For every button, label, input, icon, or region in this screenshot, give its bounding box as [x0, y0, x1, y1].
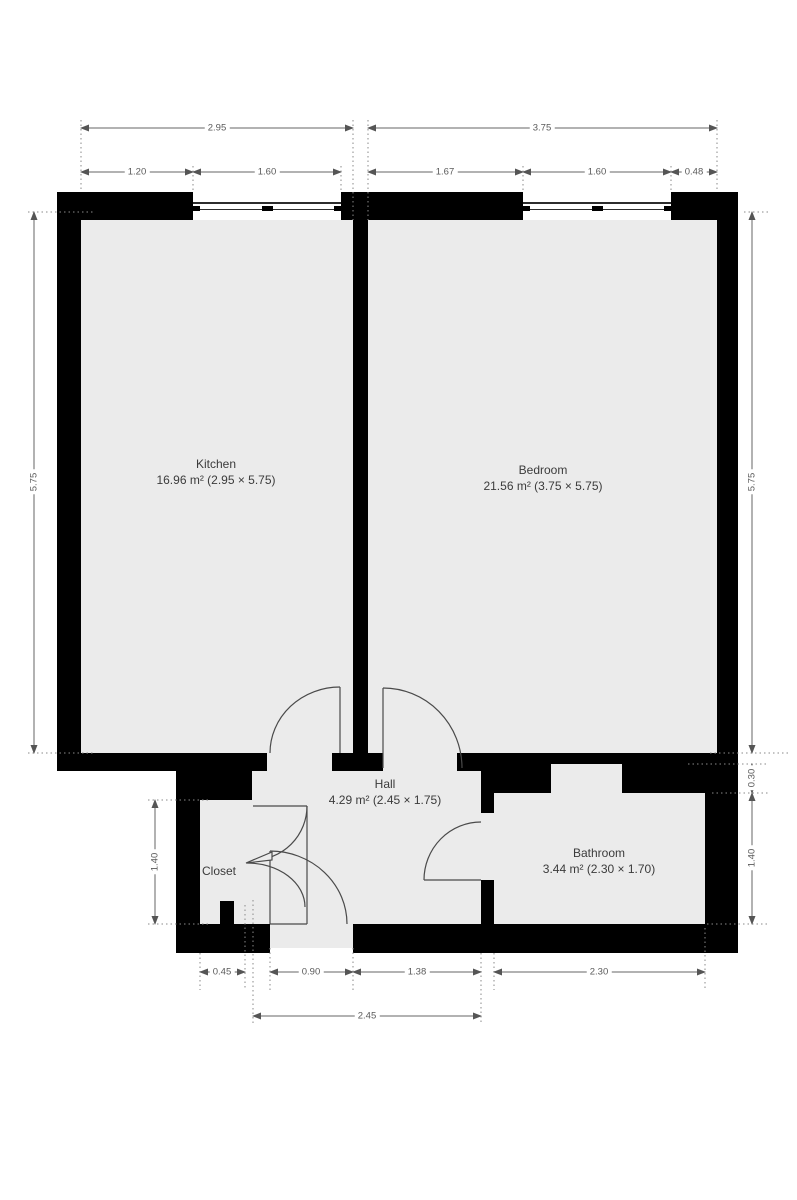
bedroom-name: Bedroom [483, 462, 602, 478]
entrance-door [270, 851, 347, 924]
hall-name: Hall [329, 776, 441, 792]
dim-bedroom-window: 1.60 [585, 167, 610, 178]
closet-label: Closet [202, 863, 236, 879]
dim-bath-height: 1.40 [747, 846, 758, 871]
dimension-lines [34, 128, 752, 1016]
dim-bedroom-wall-right: 0.48 [682, 167, 707, 178]
dim-kitchen-width-total: 2.95 [205, 123, 230, 134]
dim-kitchen-window: 1.60 [255, 167, 280, 178]
bathroom-door [424, 822, 481, 880]
dim-closet-bottom: 0.45 [210, 967, 235, 978]
dim-bedroom-wall-left: 1.67 [433, 167, 458, 178]
plan-linework [0, 0, 797, 1200]
bathroom-label: Bathroom 3.44 m² (2.30 × 1.70) [543, 845, 655, 877]
dim-bedroom-height: 5.75 [747, 470, 758, 495]
dim-entrance-width: 0.90 [299, 967, 324, 978]
dim-hall-bottom: 1.38 [405, 967, 430, 978]
dim-bathroom-width: 2.30 [587, 967, 612, 978]
hall-label: Hall 4.29 m² (2.45 × 1.75) [329, 776, 441, 808]
bedroom-door [383, 688, 462, 768]
kitchen-label: Kitchen 16.96 m² (2.95 × 5.75) [156, 456, 275, 488]
bedroom-area: 21.56 m² (3.75 × 5.75) [483, 478, 602, 494]
floor-plan: 2.95 3.75 1.20 1.60 1.67 1.60 0.48 5.75 … [0, 0, 797, 1200]
hall-area: 4.29 m² (2.45 × 1.75) [329, 792, 441, 808]
dim-bedroom-width-total: 3.75 [530, 123, 555, 134]
dim-bath-step: 0.30 [747, 766, 758, 791]
kitchen-area: 16.96 m² (2.95 × 5.75) [156, 472, 275, 488]
kitchen-name: Kitchen [156, 456, 275, 472]
extension-lines [28, 120, 788, 1024]
closet-name: Closet [202, 863, 236, 879]
bathroom-name: Bathroom [543, 845, 655, 861]
dim-kitchen-height: 5.75 [29, 470, 40, 495]
closet-door [246, 806, 307, 924]
kitchen-door [270, 687, 340, 753]
bedroom-label: Bedroom 21.56 m² (3.75 × 5.75) [483, 462, 602, 494]
dim-closet-height: 1.40 [150, 850, 161, 875]
dim-hall-width-total: 2.45 [355, 1011, 380, 1022]
bathroom-area: 3.44 m² (2.30 × 1.70) [543, 861, 655, 877]
dim-kitchen-wall-left: 1.20 [125, 167, 150, 178]
